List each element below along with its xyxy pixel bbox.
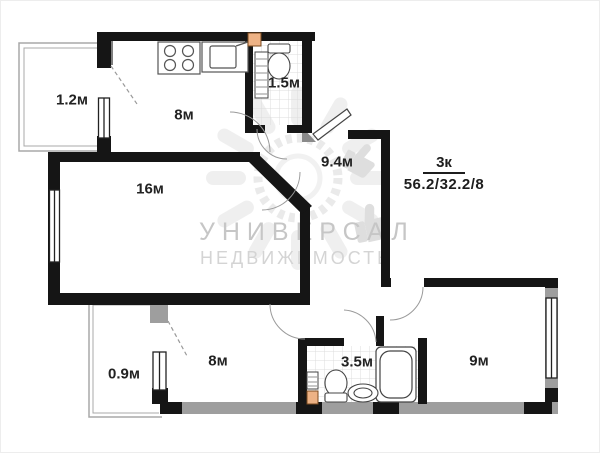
room-label-bathroom-bottom: 3.5м [341, 354, 373, 371]
kitchen-sink-icon [202, 42, 248, 72]
room-label-hallway: 9.4м [321, 154, 353, 171]
room-label-balcony-top: 1.2м [56, 92, 88, 109]
floor-plan-drawing [0, 0, 600, 453]
radiator-grille-icon [255, 52, 268, 98]
room-label-balcony-bottom: 0.9м [108, 366, 140, 383]
bathtub-icon [376, 347, 416, 402]
room-label-room-right: 9м [469, 353, 488, 370]
vent-block-bottom [307, 391, 318, 404]
balcony-railings [19, 43, 162, 417]
washbasin-icon [348, 384, 378, 402]
entrance-door [313, 109, 351, 140]
toilet-bottom-icon [325, 370, 347, 402]
apartment-areas-label: 56.2/32.2/8 [396, 176, 492, 193]
room-label-room-left: 8м [208, 353, 227, 370]
stove-icon [158, 42, 200, 74]
vent-block-top [248, 33, 261, 46]
room-label-kitchen: 8м [174, 107, 193, 124]
room-label-living: 16м [136, 181, 164, 198]
door-arcs [230, 112, 423, 342]
apartment-title-block: 3к 56.2/32.2/8 [396, 154, 492, 193]
floor-plan: УНИВЕРСАЛ НЕДВИЖИМОСТЬ [0, 0, 600, 453]
room-label-bathroom-top: 1.5м [268, 75, 300, 92]
radiator-grille-bottom-icon [307, 372, 318, 389]
apartment-type-label: 3к [423, 154, 465, 174]
